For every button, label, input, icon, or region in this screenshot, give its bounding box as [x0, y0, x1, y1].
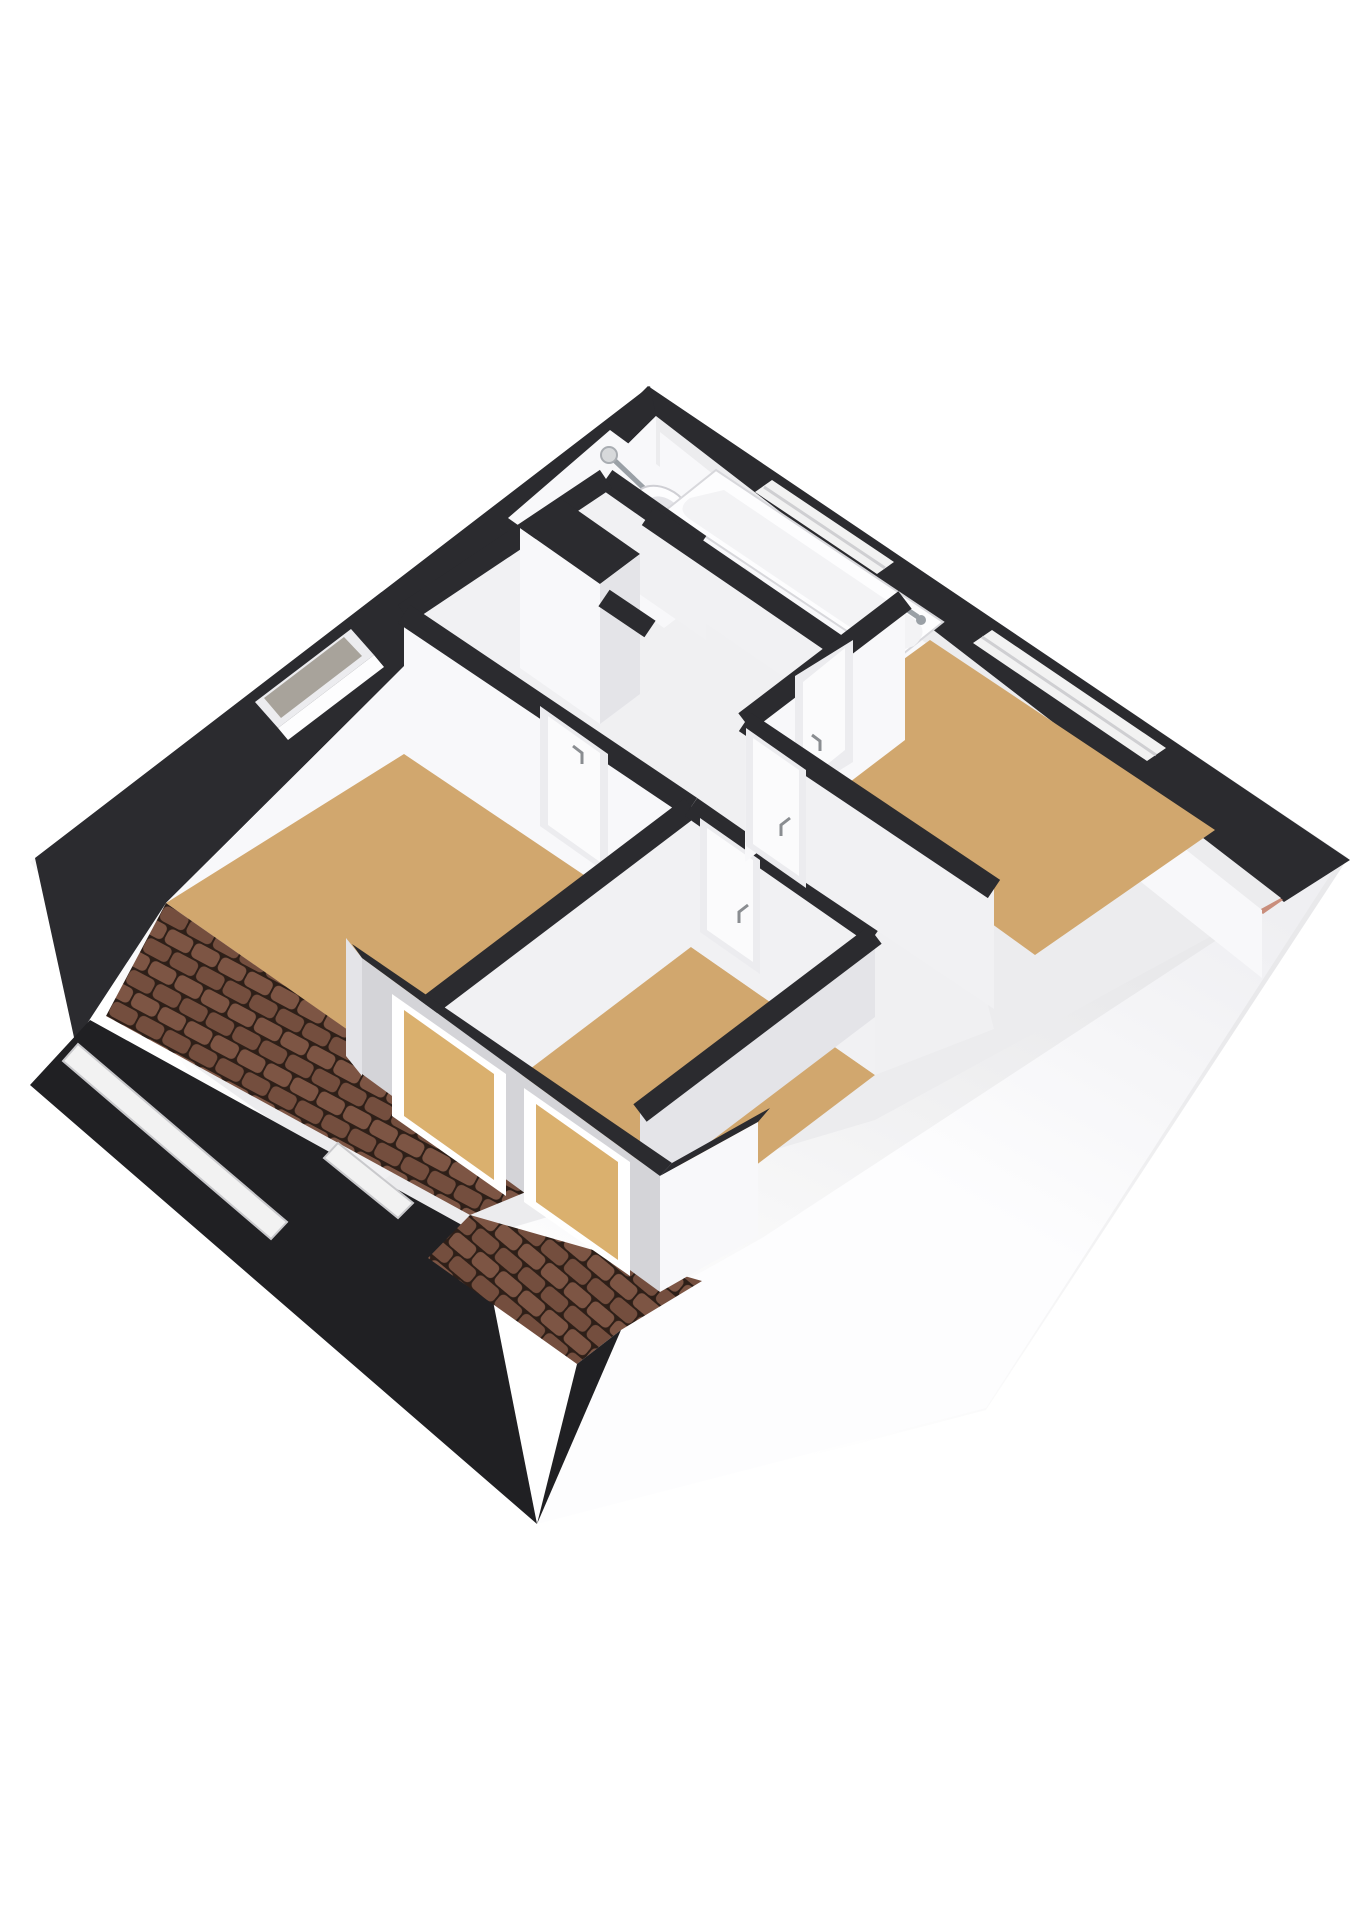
floorplan-render: [0, 0, 1358, 1920]
stair-column-side: [600, 554, 640, 724]
bathtub-tap-icon: [916, 615, 926, 625]
floorplan-canvas: [0, 0, 1358, 1920]
faucet-head-icon: [601, 447, 617, 463]
dormer-left-return: [346, 938, 362, 1076]
